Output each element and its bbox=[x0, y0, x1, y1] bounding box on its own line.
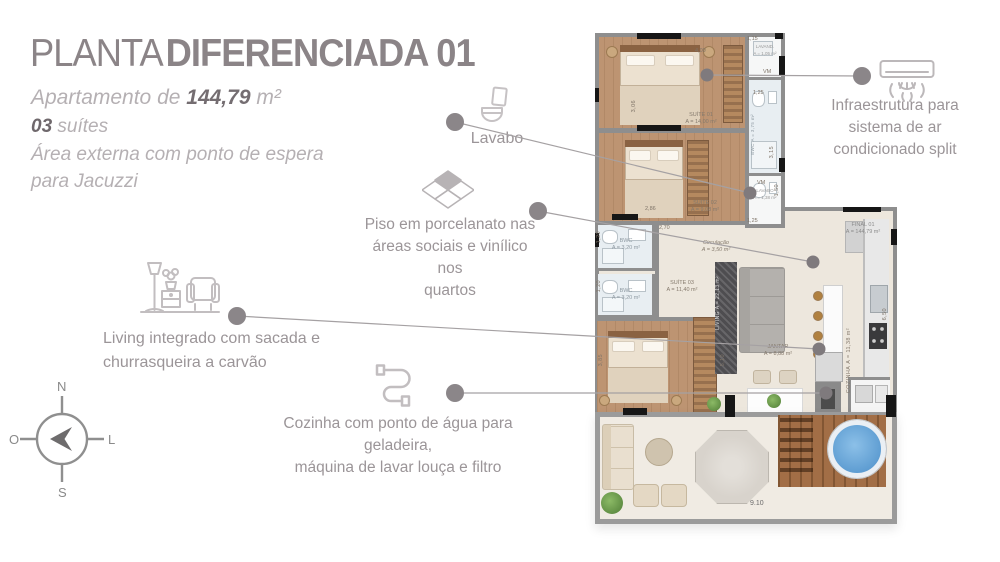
kitchen-island bbox=[823, 285, 843, 361]
label-jantar: JANTAR A = 8,88 m² bbox=[753, 344, 803, 357]
floor-plan: 9.10 SUÍTE 01 A = 14,00 m² SUÍTE 02 A = … bbox=[595, 28, 940, 545]
bed-pillow bbox=[657, 150, 678, 161]
nightstand bbox=[599, 395, 610, 406]
bed-pillow bbox=[626, 55, 656, 66]
dim: 1,50 bbox=[774, 184, 780, 196]
island-stool bbox=[813, 311, 823, 321]
dim: 1,25 bbox=[753, 90, 764, 96]
floor-plant bbox=[707, 397, 721, 411]
table-plant bbox=[767, 394, 781, 408]
callout-piso-line3: quartos bbox=[361, 280, 539, 302]
callout-piso-line2: áreas sociais e vinílico nos bbox=[361, 236, 539, 280]
island-stool bbox=[813, 291, 823, 301]
description-line1: Área externa com ponto de espera bbox=[31, 144, 324, 166]
label-final: FINAL 01 A = 144,79 m² bbox=[837, 222, 889, 235]
column-marker bbox=[725, 395, 735, 417]
room-area: A = 22,13 m² bbox=[715, 276, 721, 309]
callout-dot-living bbox=[228, 307, 246, 325]
room-area: A = 3,50 m² bbox=[690, 247, 742, 254]
bed-pillow bbox=[642, 341, 664, 352]
wall bbox=[749, 77, 781, 80]
bbq-counter bbox=[815, 352, 843, 382]
room-area: A = 11,40 m² bbox=[657, 287, 707, 294]
label-suite2: SUÍTE 02 A = 9,08 m² bbox=[679, 200, 731, 213]
room-area: A = 11,38 m² bbox=[846, 328, 852, 364]
sink-fixture bbox=[768, 91, 777, 104]
callout-living-text: Living integrado com sacada e churrasque… bbox=[103, 327, 323, 375]
nightstand bbox=[606, 46, 618, 58]
vm-marker: VM bbox=[757, 180, 765, 186]
terrace-block: 9.10 bbox=[595, 412, 897, 524]
dim: 1,25 bbox=[747, 218, 758, 224]
compass-west-label: O bbox=[9, 432, 19, 447]
jacuzzi bbox=[828, 420, 886, 478]
label-lavand: LAVAND. A = 1,05 m² bbox=[747, 44, 783, 57]
deck-pergola-slats bbox=[780, 418, 813, 474]
bed-pillow bbox=[629, 150, 650, 161]
window-marker bbox=[779, 56, 785, 76]
compass-graphic bbox=[14, 382, 110, 498]
dim: 1,15 bbox=[747, 36, 758, 42]
dim-terrace-width: 9.10 bbox=[750, 500, 764, 507]
room-area: A = 3,20 m² bbox=[603, 245, 649, 252]
bed-blanket bbox=[608, 367, 668, 403]
floor-tiles-icon bbox=[422, 170, 474, 210]
room-area: A = 8,88 m² bbox=[753, 351, 803, 358]
room-area: A = 1,05 m² bbox=[747, 51, 783, 58]
window-marker bbox=[637, 125, 681, 131]
page-title: PLANTADIFERENCIADA 01 bbox=[30, 34, 475, 74]
wall bbox=[655, 224, 659, 318]
dim: 2,86 bbox=[645, 206, 656, 212]
bed-headboard bbox=[625, 140, 683, 147]
room-name: COZINHA bbox=[846, 366, 852, 394]
dim: 1,20 bbox=[596, 280, 602, 292]
apartment-area-line: Apartamento de 144,79 m² bbox=[31, 86, 281, 110]
label-circulacao: Circulação A = 3,50 m² bbox=[690, 240, 742, 253]
callout-living-line2: churrasqueira a carvão bbox=[103, 351, 323, 375]
toilet-icon bbox=[477, 86, 515, 130]
callout-dot-lavabo bbox=[446, 113, 464, 131]
label-suite3: SUÍTE 03 A = 11,40 m² bbox=[657, 280, 707, 293]
window-marker bbox=[637, 33, 681, 39]
dim: 3,06 bbox=[631, 100, 637, 112]
suites-line: 03 suítes bbox=[31, 116, 108, 138]
callout-piso-line1: Piso em porcelanato nas bbox=[361, 214, 539, 236]
suites-count: 03 bbox=[31, 116, 52, 137]
outdoor-coffee-table bbox=[645, 438, 673, 466]
dim: 1,20 bbox=[596, 231, 602, 243]
compass-rose: N S O L bbox=[14, 382, 110, 498]
dim: 2,70 bbox=[659, 225, 670, 231]
window-marker bbox=[779, 158, 785, 172]
room-name: BWC bbox=[750, 143, 755, 155]
title-light: PLANTA bbox=[30, 32, 163, 75]
window-marker bbox=[623, 408, 647, 415]
title-bold: DIFERENCIADA 01 bbox=[166, 32, 475, 75]
callout-cozinha-line1: Cozinha com ponto de água para geladeira… bbox=[253, 413, 543, 457]
suite3-bed bbox=[608, 331, 668, 403]
washer bbox=[855, 385, 873, 403]
island-stool bbox=[813, 331, 823, 341]
window-marker bbox=[612, 214, 638, 220]
apartment-prefix: Apartamento de bbox=[31, 86, 186, 109]
compass-south-label: S bbox=[58, 485, 67, 500]
dining-chair bbox=[753, 370, 771, 384]
bed-pillow bbox=[665, 55, 695, 66]
callout-living-line1: Living integrado com sacada e bbox=[103, 327, 323, 351]
label-bwc1: BWC A = 3,20 m² bbox=[603, 238, 649, 251]
outdoor-armchair bbox=[661, 484, 687, 507]
room-area: A = 14,00 m² bbox=[673, 119, 729, 126]
bed-pillow bbox=[612, 341, 634, 352]
water-pipe-icon bbox=[370, 362, 418, 408]
window-marker bbox=[843, 207, 881, 212]
window-marker bbox=[595, 88, 599, 102]
dim: 3,85 bbox=[598, 354, 604, 366]
outdoor-sofa bbox=[602, 424, 634, 490]
room-area: A = 144,79 m² bbox=[837, 229, 889, 236]
label-living: LIVING A = 22,13 m² bbox=[715, 276, 721, 330]
label-suite1: SUÍTE 01 A = 14,00 m² bbox=[673, 112, 729, 125]
room-name: LIVING bbox=[715, 311, 721, 330]
apartment-suffix: m² bbox=[251, 86, 281, 109]
callout-dot-cozinha bbox=[446, 384, 464, 402]
callout-cozinha-text: Cozinha com ponto de água para geladeira… bbox=[253, 413, 543, 479]
callout-piso-text: Piso em porcelanato nas áreas sociais e … bbox=[361, 214, 539, 302]
dim: 6,50 bbox=[882, 308, 888, 320]
dining-chair bbox=[779, 370, 797, 384]
wall bbox=[749, 173, 781, 176]
bed-headboard bbox=[620, 45, 700, 52]
label-cozinha: COZINHA A = 11,38 m² bbox=[846, 328, 852, 393]
nightstand bbox=[671, 395, 682, 406]
callout-lavabo-label: Lavabo bbox=[447, 130, 547, 148]
service-room bbox=[848, 377, 890, 416]
room-area: A = 9,08 m² bbox=[679, 207, 731, 214]
compass-east-label: L bbox=[108, 432, 115, 447]
room-area: A = 3,20 m² bbox=[603, 295, 649, 302]
living-sofa bbox=[739, 267, 785, 353]
label-bwc2: BWC A = 3,20 m² bbox=[603, 288, 649, 301]
callout-cozinha-line2: máquina de lavar louça e filtro bbox=[253, 457, 543, 479]
charcoal-grill bbox=[815, 382, 841, 416]
floorplan-marketing-page: PLANTADIFERENCIADA 01 Apartamento de 144… bbox=[0, 0, 1000, 562]
description-line2: para Jacuzzi bbox=[31, 171, 138, 193]
suites-label: suítes bbox=[52, 116, 108, 137]
apartment-area-value: 144,79 bbox=[186, 86, 250, 109]
dim: 4,00 bbox=[695, 48, 706, 54]
column-marker bbox=[886, 395, 896, 417]
grill-pit bbox=[821, 389, 835, 409]
room-area: A = 3,75 m² bbox=[750, 114, 755, 142]
vm-marker: VM bbox=[763, 69, 771, 75]
cooktop bbox=[869, 323, 887, 349]
window-marker bbox=[775, 33, 783, 39]
bed-headboard bbox=[608, 331, 668, 338]
gazebo-canopy bbox=[695, 430, 769, 504]
compass-north-label: N bbox=[57, 379, 66, 394]
dim: 3,15 bbox=[769, 146, 775, 158]
label-bwc-suite1: BWC A = 3,75 m² bbox=[750, 114, 755, 155]
dim: 5,10 bbox=[720, 354, 726, 366]
window-marker bbox=[891, 229, 897, 245]
bed-blanket bbox=[625, 179, 683, 218]
living-furniture-icon bbox=[137, 260, 221, 320]
terrace-plant bbox=[601, 492, 623, 514]
outdoor-armchair bbox=[633, 484, 659, 507]
